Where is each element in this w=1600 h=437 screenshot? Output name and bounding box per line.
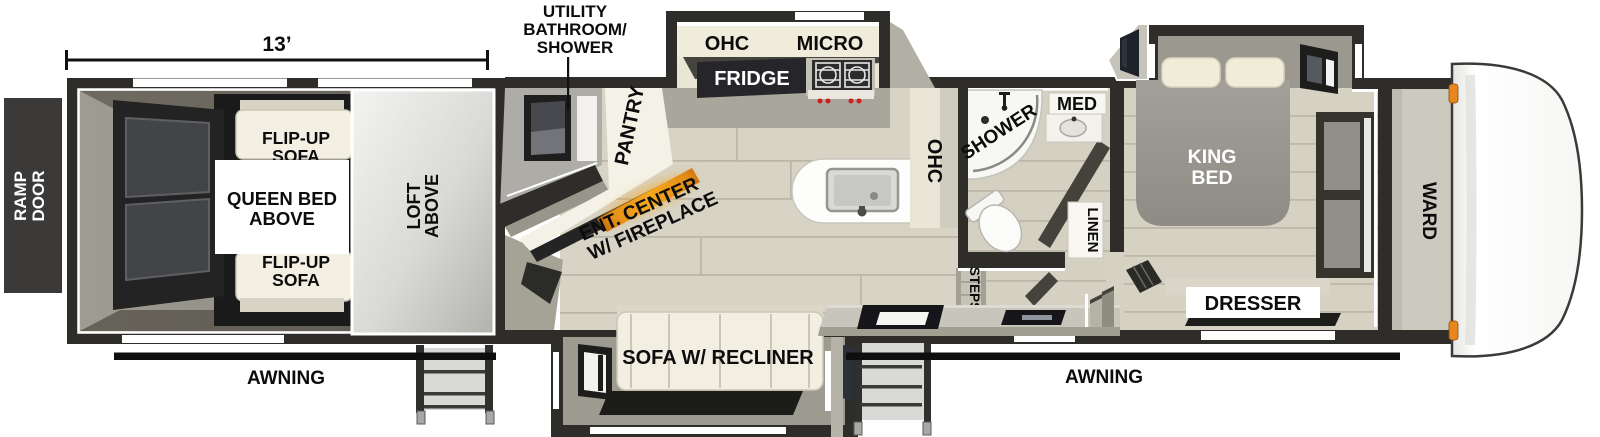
svg-text:DOOR: DOOR	[29, 171, 48, 222]
svg-text:AWNING: AWNING	[1065, 367, 1143, 388]
svg-text:LINEN: LINEN	[1084, 208, 1101, 253]
svg-text:LOFT: LOFT	[404, 183, 424, 230]
svg-text:WARD: WARD	[1418, 182, 1439, 240]
svg-text:RAMP: RAMP	[11, 171, 30, 221]
svg-text:OHC: OHC	[705, 33, 749, 55]
svg-text:QUEEN BED: QUEEN BED	[227, 188, 337, 209]
svg-text:AWNING: AWNING	[247, 368, 325, 389]
svg-text:FLIP-UP: FLIP-UP	[262, 128, 330, 148]
svg-text:FRIDGE: FRIDGE	[714, 68, 790, 90]
svg-text:STEPS: STEPS	[967, 267, 982, 311]
svg-text:UTILITY: UTILITY	[543, 2, 608, 21]
svg-text:ABOVE: ABOVE	[422, 174, 442, 238]
svg-text:SOFA: SOFA	[272, 270, 320, 290]
svg-text:BATHROOM/: BATHROOM/	[523, 20, 627, 39]
svg-text:FLIP-UP: FLIP-UP	[262, 252, 330, 272]
svg-text:ABOVE: ABOVE	[249, 208, 315, 229]
svg-text:13’: 13’	[262, 33, 291, 56]
svg-text:SOFA W/ RECLINER: SOFA W/ RECLINER	[622, 347, 814, 369]
svg-text:SHOWER: SHOWER	[537, 38, 614, 57]
svg-text:OHC: OHC	[923, 139, 945, 183]
svg-text:MICRO: MICRO	[797, 33, 864, 55]
svg-text:DRESSER: DRESSER	[1205, 293, 1302, 315]
svg-text:KING: KING	[1188, 146, 1237, 168]
svg-text:BED: BED	[1191, 167, 1232, 189]
svg-text:MED: MED	[1057, 94, 1097, 114]
